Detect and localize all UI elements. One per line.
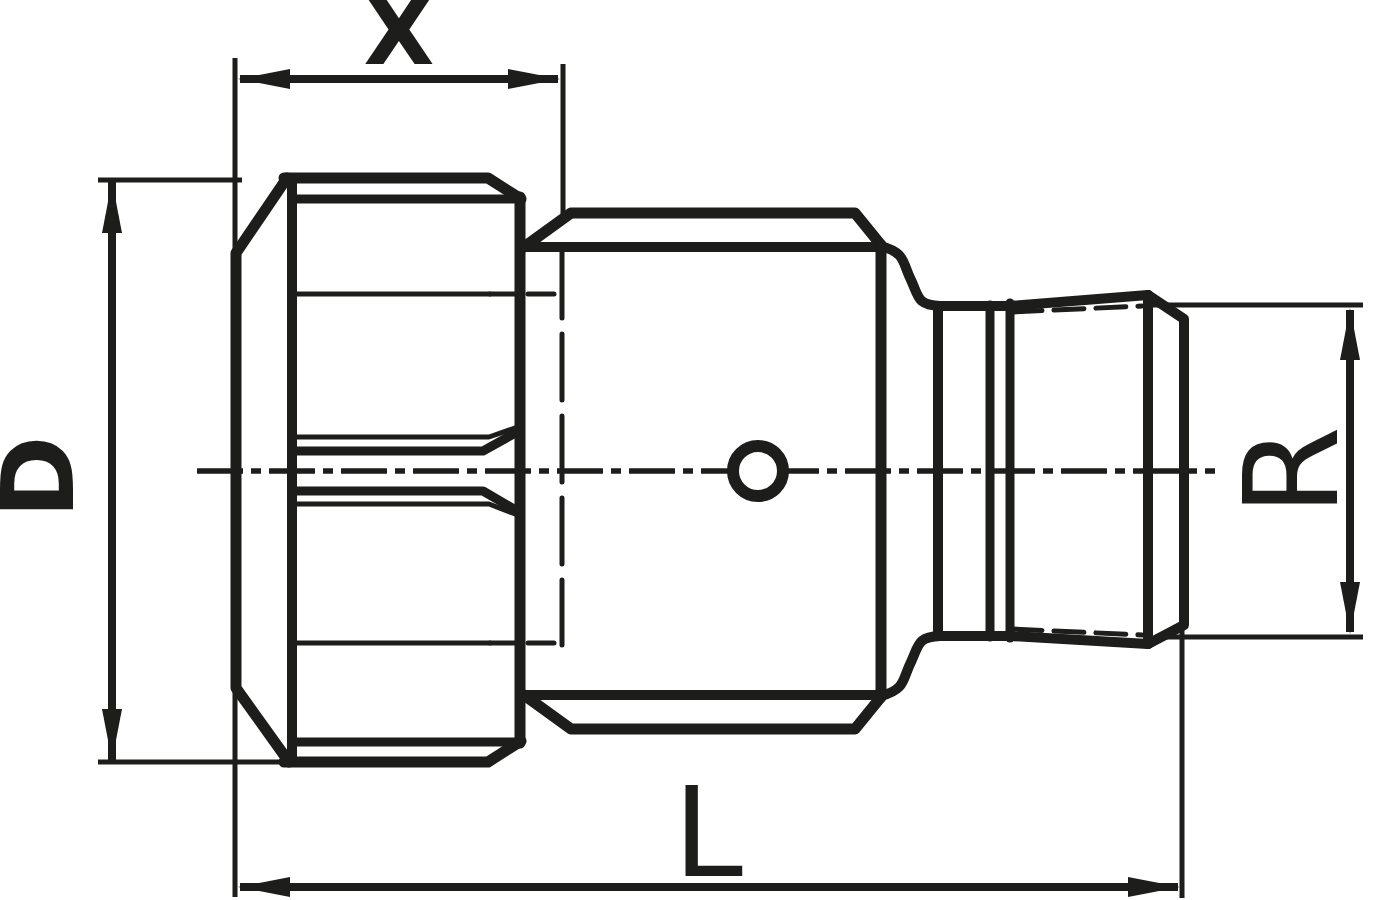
- arrowhead-right: [508, 69, 560, 89]
- dimension-d: D: [0, 180, 295, 762]
- dimension-l-label: L: [673, 760, 743, 900]
- dimension-d-label: D: [0, 435, 97, 518]
- arrowhead-down: [1340, 582, 1360, 634]
- fitting-drawing: X D L R: [0, 0, 1400, 900]
- neck-curve-top: [881, 246, 940, 306]
- technical-drawing-canvas: X D L R: [0, 0, 1400, 900]
- neck-curve-bottom: [881, 636, 940, 696]
- arrowhead-right: [1128, 877, 1180, 897]
- arrowhead-left: [238, 877, 290, 897]
- dimension-r-label: R: [1216, 426, 1368, 516]
- center-hole: [733, 446, 783, 496]
- dimension-x-label: X: [364, 0, 435, 86]
- arrowhead-up: [102, 181, 122, 233]
- arrowhead-down: [102, 709, 122, 761]
- arrowhead-up: [1340, 308, 1360, 360]
- arrowhead-left: [238, 69, 290, 89]
